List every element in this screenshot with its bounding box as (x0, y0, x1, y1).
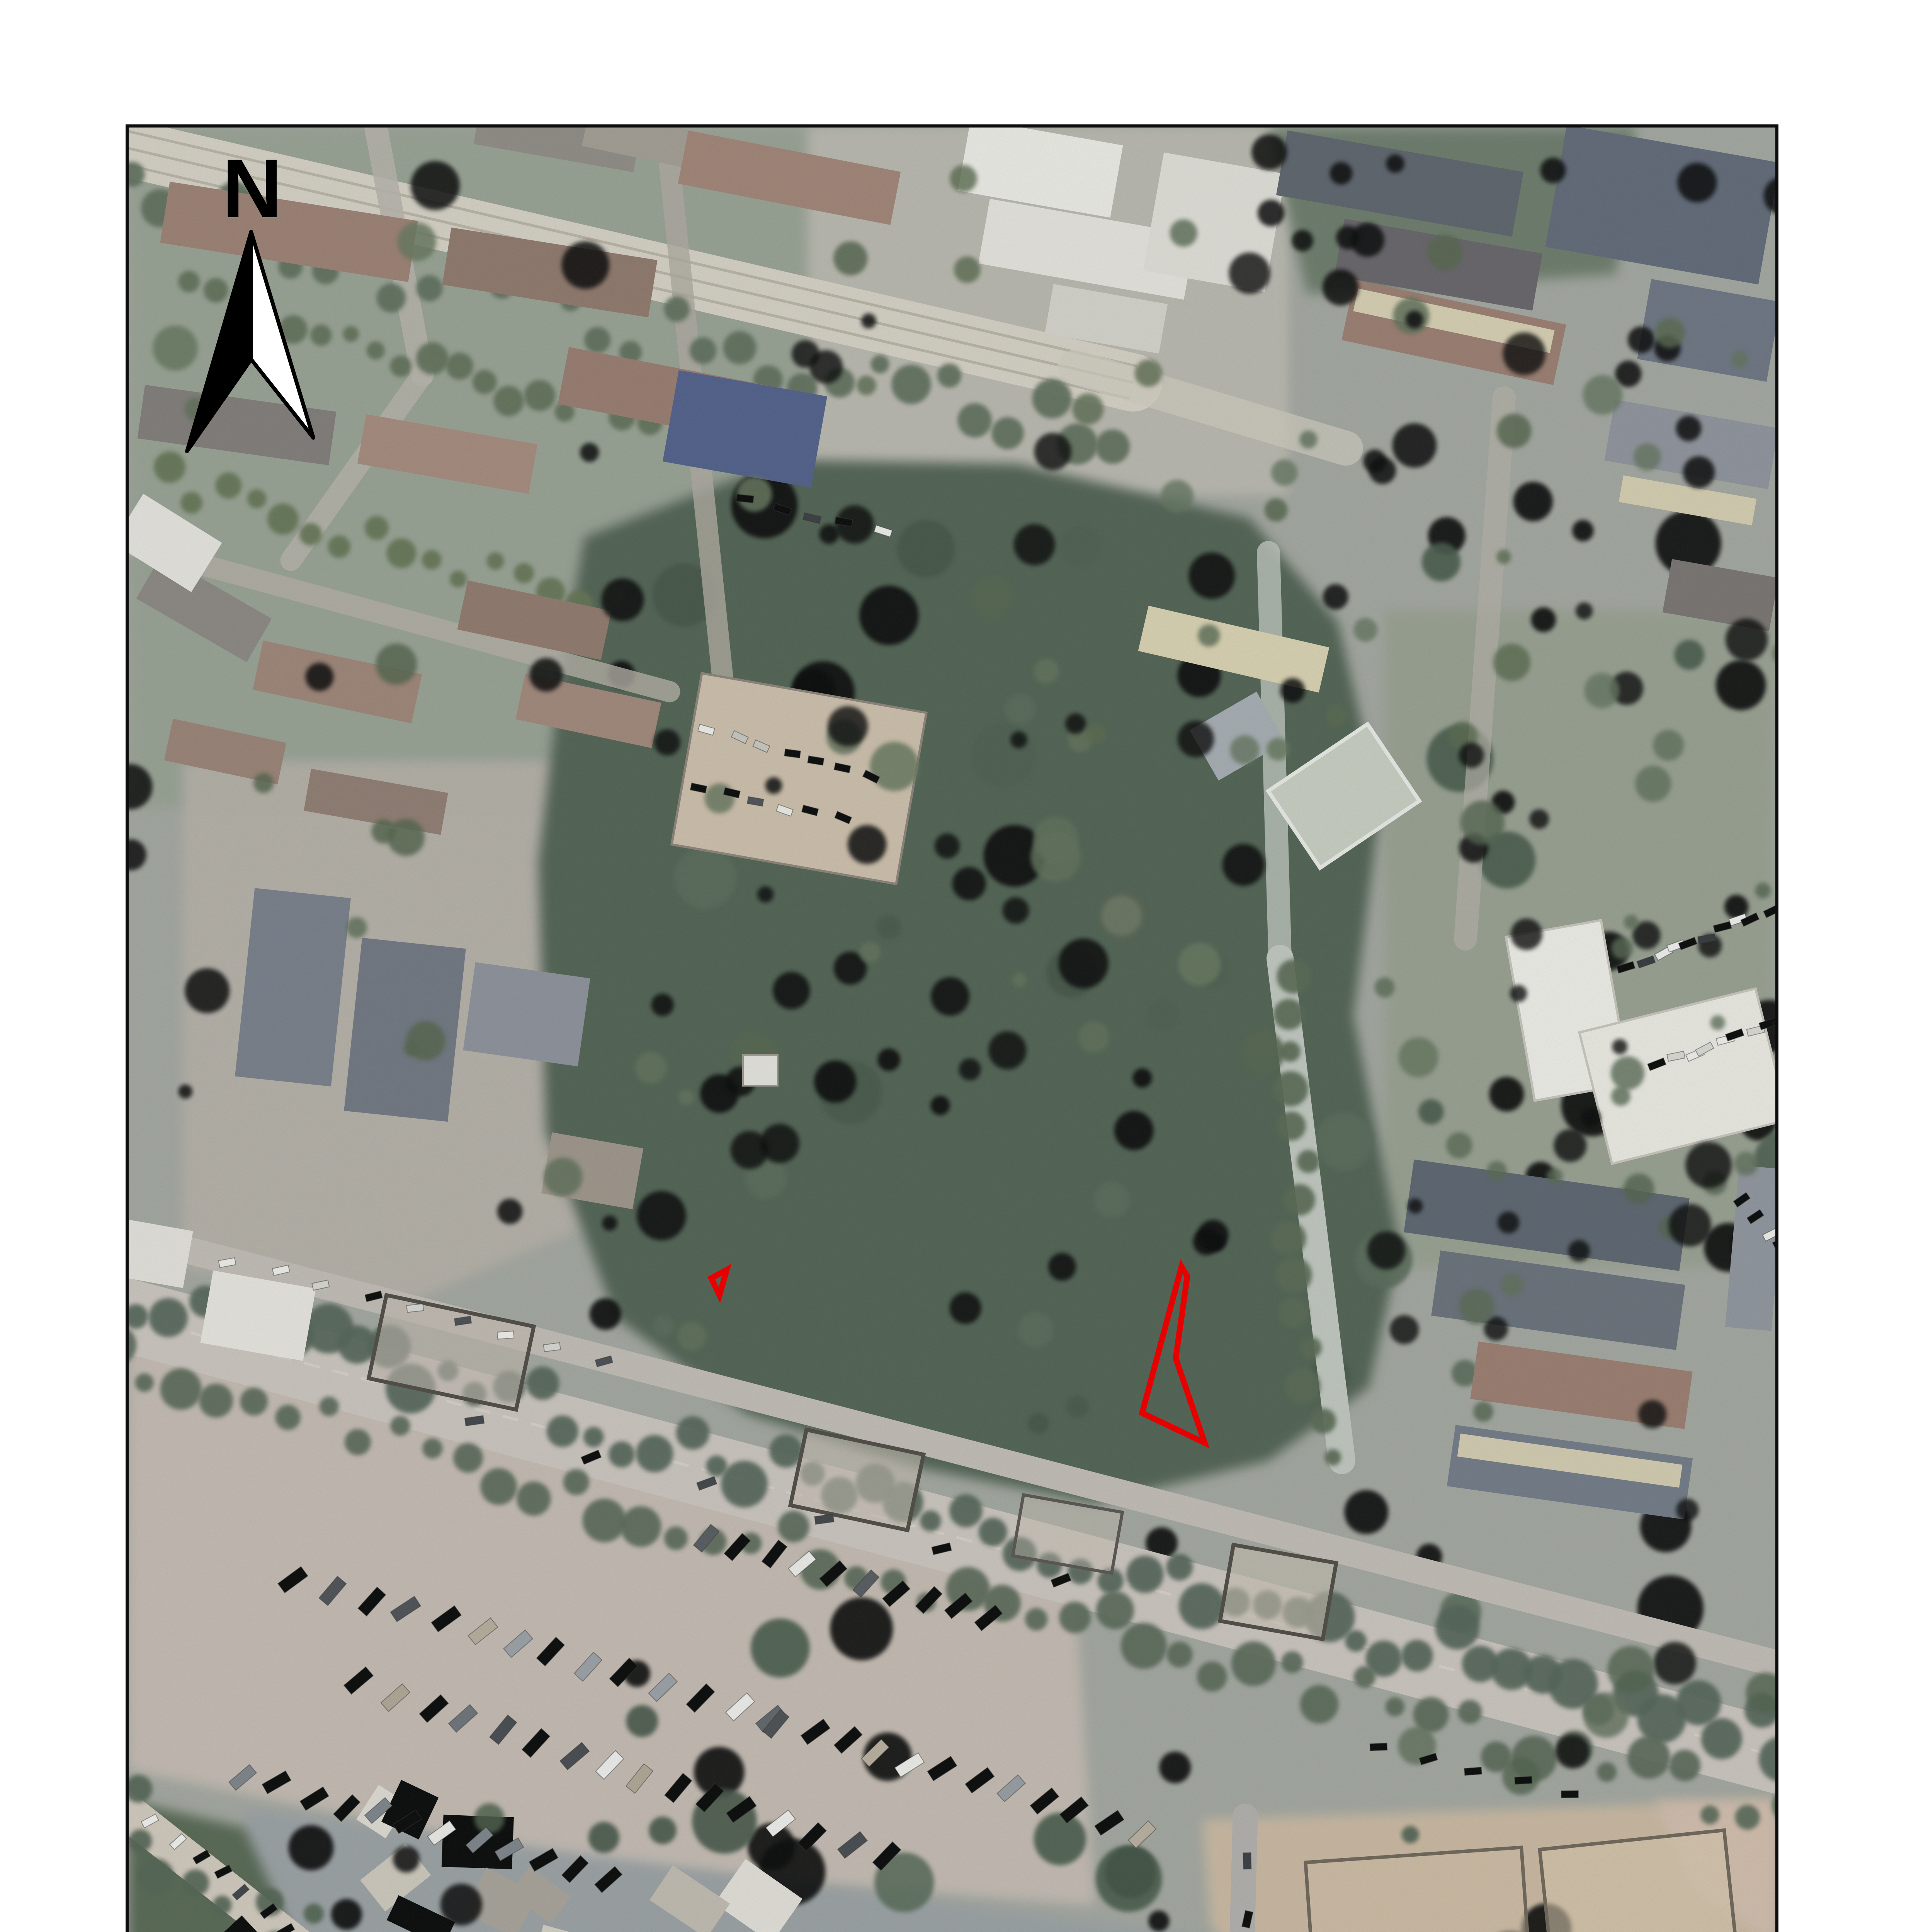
satellite-svg: N (129, 128, 1775, 1932)
haze-tint (129, 128, 1775, 1932)
satellite-map-frame: N (126, 124, 1778, 1932)
page-root: { "figure": { "type": "satellite-aerial-… (0, 0, 1916, 1932)
north-label: N (222, 142, 282, 235)
